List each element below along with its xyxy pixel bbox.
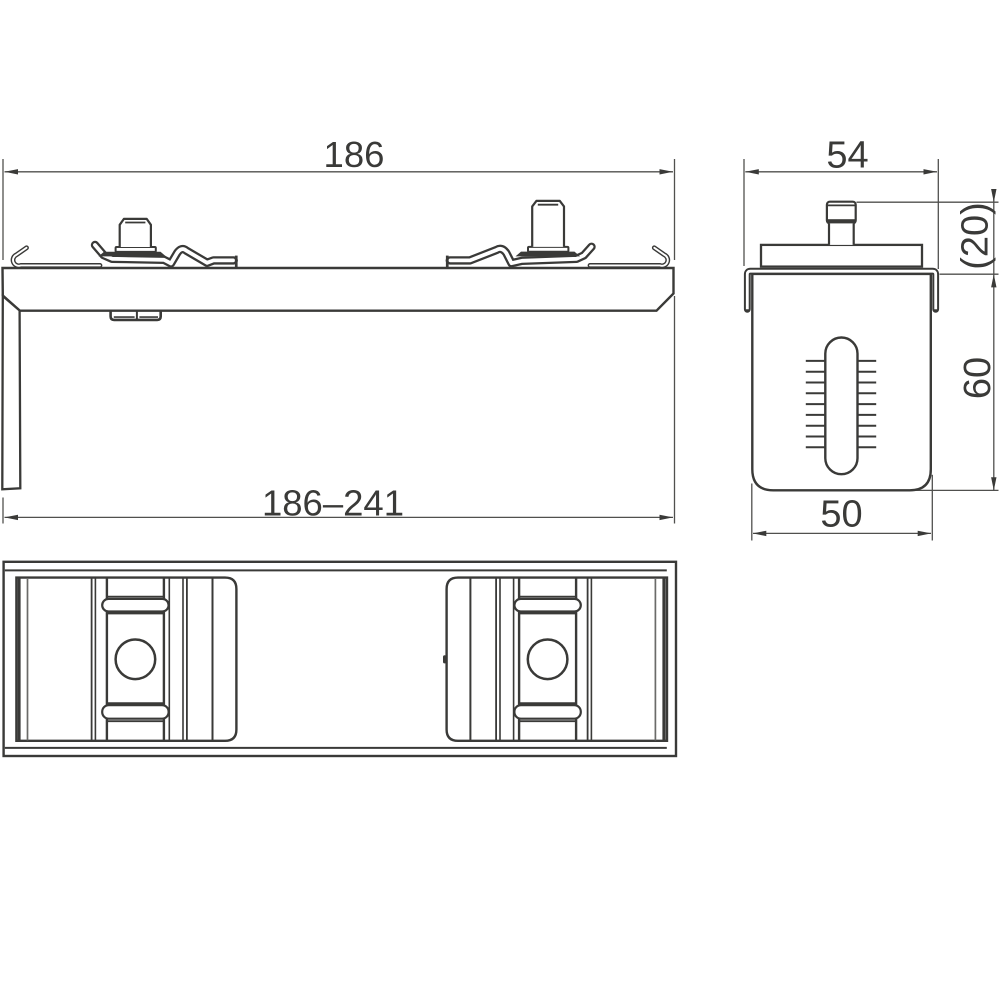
svg-text:50: 50 xyxy=(820,494,862,536)
svg-text:186–241: 186–241 xyxy=(262,483,404,524)
svg-text:60: 60 xyxy=(957,357,999,399)
svg-text:(20): (20) xyxy=(955,202,997,270)
svg-text:54: 54 xyxy=(826,134,868,176)
svg-text:186: 186 xyxy=(324,134,385,175)
